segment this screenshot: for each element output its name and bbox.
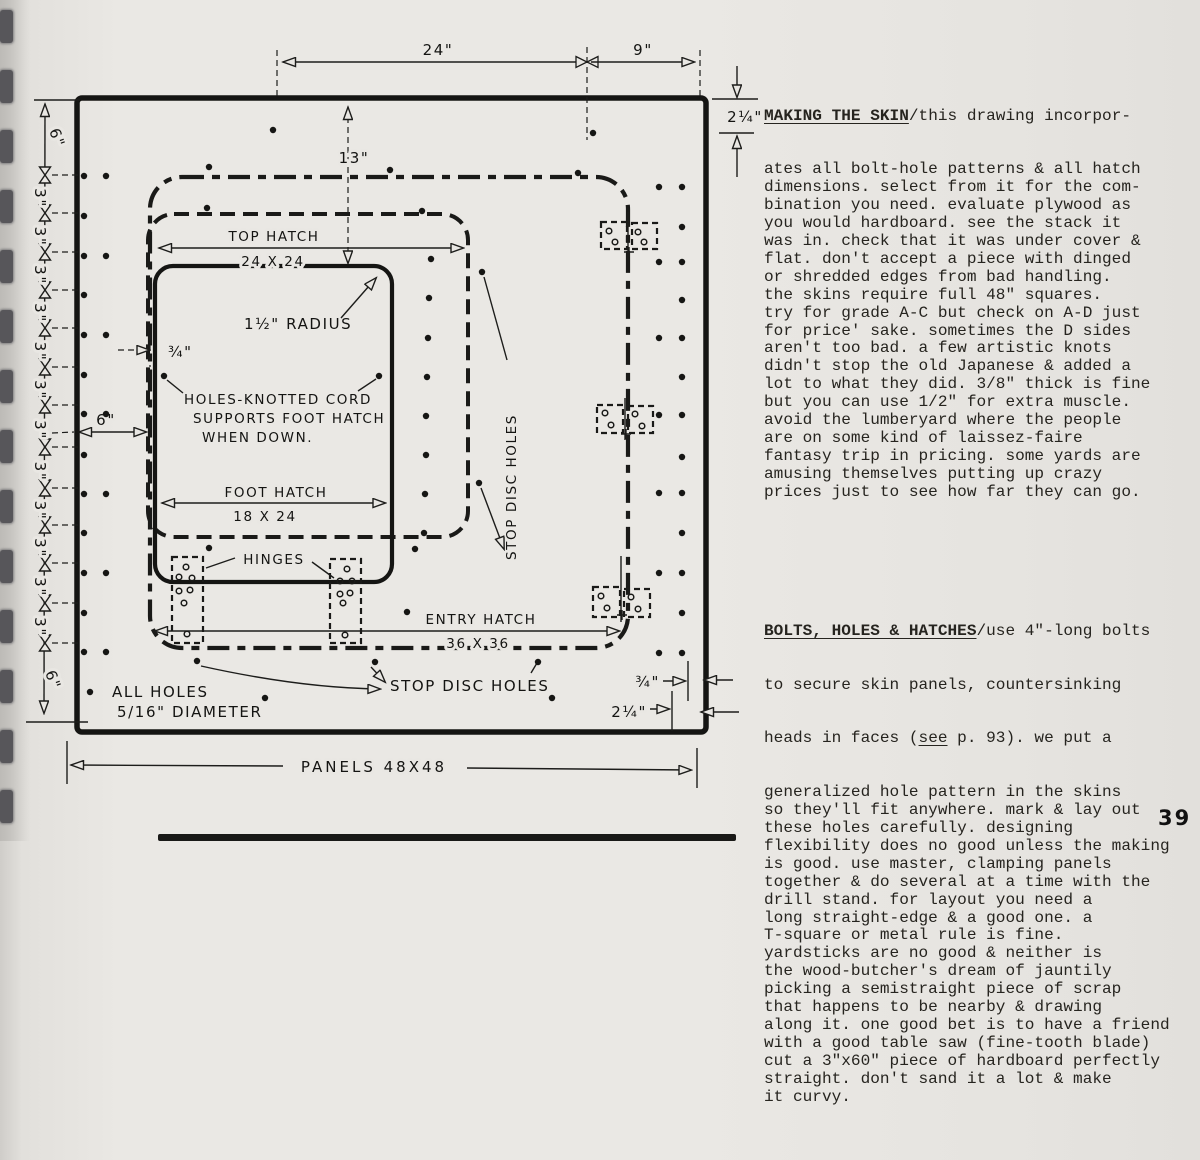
label-top-hatch: TOP HATCH [227,229,319,245]
paragraph-making-the-skin: MAKING THE SKIN/this drawing incorpor- a… [764,72,1192,538]
see-line-post: p. 93). we put a [948,729,1112,747]
bolt-hole-dot [549,695,555,701]
label-knotted-1: HOLES-KNOTTED CORD [184,392,372,408]
small-hole-circle [183,564,189,570]
text-line: the skins require full 48" squares. [764,287,1192,305]
dim-6-top-label: 6" [45,126,69,151]
knotted-leader [167,380,183,393]
bolt-hole-dot [103,649,109,655]
text-line: fantasy trip in pricing. some yards are [764,448,1192,466]
dim-line-panels [467,768,691,770]
text-line: cut a 3"x60" piece of hardboard perfectl… [764,1053,1192,1071]
article-text: MAKING THE SKIN/this drawing incorpor- a… [764,36,1192,1160]
small-hole-circle [337,591,343,597]
text-line: avoid the lumberyard where the people [764,412,1192,430]
label-panels: PANELS 48X48 [301,758,447,776]
text-line: didn't stop the old Japanese & added a [764,358,1192,376]
dim-3-inch-label: 3" [31,303,49,323]
section-title-making-the-skin: MAKING THE SKIN [764,107,909,125]
dim-3-inch-label: 3" [31,538,49,558]
text-line: or shredded edges from bad handling. [764,269,1192,287]
text-line: is good. use master, clamping panels [764,856,1192,874]
dim-34ul-label: ¾" [168,343,193,361]
bolt-hole-dot [103,411,109,417]
small-hole-circle [347,590,353,596]
small-hole-circle [187,587,193,593]
dim-24-label: 24" [423,41,454,59]
small-hole-circle [344,566,350,572]
text-line: amusing themselves putting up crazy [764,466,1192,484]
text-line: BOLTS, HOLES & HATCHES/use 4"-long bolts [764,623,1192,641]
text-line: it curvy. [764,1089,1192,1107]
bolt-hole-dot [81,491,87,497]
small-hole-circle [184,631,190,637]
bolt-hole-dot [376,373,382,379]
bolt-hole-dot [81,372,87,378]
bolt-hole-dot [81,649,87,655]
dim-214tr-label: 2¼" [727,108,760,126]
bolt-hole-dot [419,208,425,214]
bolt-pattern-3 [593,556,650,622]
bolt-hole-dot [87,689,93,695]
bolt-hole-dot [679,610,685,616]
text-line: drill stand. for layout you need a [764,892,1192,910]
paragraph-lines: generalized hole pattern in the skinsso … [764,784,1192,1106]
small-hole-circle [176,588,182,594]
text-line: to secure skin panels, countersinking [764,677,1192,695]
text-line: along it. one good bet is to have a frie… [764,1017,1192,1035]
bolt-hole-dot [679,297,685,303]
label-all-holes-2: 5/16" DIAMETER [117,703,262,721]
small-hole-circle [639,423,645,429]
bolt-hole-dot [103,173,109,179]
small-hole-circle [641,239,647,245]
dim-13-label: 13" [339,149,370,167]
bolt-hole-dot [194,658,200,664]
dim-3-inch-label: 3" [31,342,49,362]
bolt-hole-dot [81,452,87,458]
text-line: these holes carefully. designing [764,820,1192,838]
small-hole-circle [342,632,348,638]
bolt-hole-dot [103,491,109,497]
small-hole-circle [604,605,610,611]
text-line: generalized hole pattern in the skins [764,784,1192,802]
small-hole-circle [598,593,604,599]
text-line: flat. don't accept a piece with dinged [764,251,1192,269]
page-number: 39 [1158,806,1191,830]
bolt-hole-dot [476,480,482,486]
label-entry-hatch: ENTRY HATCH [426,612,537,628]
bolt-hole-dot [422,491,428,497]
small-hole-circle [635,606,641,612]
text-line: that happens to be nearby & drawing [764,999,1192,1017]
bowtie-tick [40,480,51,496]
label-top-hatch-size: 24 X 24 [241,254,304,270]
label-stop-disc-bottom: STOP DISC HOLES [390,677,549,695]
bolt-hole-dot [428,256,434,262]
text-line: T-square or metal rule is fine. [764,927,1192,945]
dim-3-inch-label: 3" [31,501,49,521]
stop-disc-leader [481,488,504,549]
bolt-hole-dot [423,413,429,419]
bolt-hole-dot [81,530,87,536]
paragraph-bolts-holes-hatches: BOLTS, HOLES & HATCHES/use 4"-long bolts… [764,587,1192,1142]
small-hole-circle [635,229,641,235]
bolt-hole-dot [103,570,109,576]
hinges-leader [206,558,235,568]
title-continuation: /use 4"-long bolts [976,622,1150,640]
dim-34br-label: ¾" [635,673,660,691]
text-line: MAKING THE SKIN/this drawing incorpor- [764,108,1192,126]
scan-edge-artifact [158,834,736,841]
bowtie-tick [40,595,51,611]
radius-leader [341,278,376,318]
bowtie-tick [40,359,51,375]
bolt-hole-dot [425,335,431,341]
dim-214br-label: 2¼" [611,703,647,721]
bolt-hole-dot [575,170,581,176]
bolt-hole-dot [679,530,685,536]
text-line: together & do several at a time with the [764,874,1192,892]
text-line: lot to what they did. 3/8" thick is fine [764,376,1192,394]
bolt-hole-dot [656,259,662,265]
bolt-hole-dot [81,610,87,616]
label-entry-hatch-size: 36 X 36 [446,636,509,652]
bowtie-tick [40,439,51,455]
bowtie-tick [40,635,51,651]
bolt-hole-dot [656,650,662,656]
bolt-hole-dot [404,609,410,615]
dim-3-inch-label: 3" [31,462,49,482]
stop-disc-leader [371,667,385,682]
bolt-hole-dot [103,253,109,259]
label-foot-hatch-size: 18 X 24 [233,509,296,525]
bolt-hole-dot [535,659,541,665]
bolt-hole-dot [656,570,662,576]
text-line: with a good table saw (fine-tooth blade) [764,1035,1192,1053]
text-line: heads in faces (see p. 93). we put a [764,730,1192,748]
bolt-hole-dot [679,224,685,230]
text-line: but you can use 1/2" for extra muscle. [764,394,1192,412]
dim-9-label: 9" [633,41,653,59]
bolt-hole-dot [262,695,268,701]
bowtie-tick [40,167,51,183]
bolt-hole-dot [81,173,87,179]
bolt-hole-dot [206,164,212,170]
paragraph-lines: ates all bolt-hole patterns & all hatchd… [764,161,1192,501]
bolt-hole-dot [81,570,87,576]
small-hole-circle [176,574,182,580]
text-line: so they'll fit anywhere. mark & lay out [764,802,1192,820]
bolt-hole-dot [679,184,685,190]
bolt-hole-dot [412,546,418,552]
bolt-hole-dot [81,332,87,338]
bolt-hole-dot [81,411,87,417]
bolt-hole-dot [426,295,432,301]
bowtie-tick [40,244,51,260]
stop-disc-leader [201,666,380,689]
bolt-hole-dot [479,269,485,275]
bolt-hole-dot [81,253,87,259]
ext-line [52,432,74,433]
dim-3-inch-label: 3" [31,265,49,285]
small-hole-circle [181,600,187,606]
text-line: the wood-butcher's dream of jauntily [764,963,1192,981]
dim-3-inch-label: 3" [31,227,49,247]
dim-3-inch-label: 3" [31,617,49,637]
text-line: yardsticks are no good & neither is [764,945,1192,963]
text-line: long straight-edge & a good one. a [764,910,1192,928]
text-line: are on some kind of laissez-faire [764,430,1192,448]
text-line: prices just to see how far they can go. [764,484,1192,502]
label-all-holes-1: ALL HOLES [112,683,209,701]
bolt-hole-dot [679,412,685,418]
bolt-hole-dot [656,335,662,341]
label-foot-hatch: FOOT HATCH [225,485,328,501]
bolt-hole-dot [206,545,212,551]
small-hole-circle [340,600,346,606]
dim-3-inch-label: 3" [31,577,49,597]
label-hinges: HINGES [243,552,304,568]
bolt-hole-dot [679,490,685,496]
skin-panel-diagram: 24" 9" 13" 2¼" 3"3"3"3"3"3"3"3"3"3"3"3" … [0,0,760,800]
small-hole-circle [608,422,614,428]
dim-3-inch-label: 3" [31,380,49,400]
small-hole-circle [628,594,634,600]
small-hole-circle [606,228,612,234]
text-line: try for grade A-C but check on A-D just [764,305,1192,323]
bolt-hole-dot [161,373,167,379]
bolt-hole-dot [424,374,430,380]
text-line: straight. don't sand it a lot & make [764,1071,1192,1089]
bolt-hole-dot [423,452,429,458]
bolt-hole-dot [103,332,109,338]
bolt-hole-dot [421,530,427,536]
see-line-pre: heads in faces ( [764,729,919,747]
paragraph-lines: to secure skin panels, countersinking [764,677,1192,695]
stop-disc-leader [484,277,507,360]
text-line: dimensions. select from it for the com- [764,179,1192,197]
bolt-hole-dot [204,205,210,211]
bolt-hole-dot [81,213,87,219]
bolt-hole-dot [679,454,685,460]
bolt-hole-dot [679,259,685,265]
text-line: bination you need. evaluate plywood as [764,197,1192,215]
small-hole-circle [612,239,618,245]
text-line: you would hardboard. see the stack it [764,215,1192,233]
dim-3-inch-label: 3" [31,420,49,440]
knotted-leader [358,379,376,391]
small-hole-circle [602,410,608,416]
small-hole-circle [632,411,638,417]
dim-line-panels [71,765,283,766]
bolt-hole-dot [270,127,276,133]
dim-3-inch-label: 3" [31,188,49,208]
text-line: aren't too bad. a few artistic knots [764,340,1192,358]
label-knotted-3: WHEN DOWN. [202,430,313,446]
bolt-hole-dot [387,167,393,173]
text-line: for price' sake. sometimes the D sides [764,323,1192,341]
bolt-hole-dot [679,374,685,380]
bolt-hole-dot [81,292,87,298]
label-knotted-2: SUPPORTS FOOT HATCH [193,411,385,427]
bolt-pattern-2 [597,398,653,440]
radius-label: 1½" RADIUS [244,315,352,333]
bolt-hole-dot [372,659,378,665]
bolt-hole-dot [656,412,662,418]
text-line: ates all bolt-hole patterns & all hatch [764,161,1192,179]
bolt-hole-dot [679,335,685,341]
bolt-hole-dot [656,184,662,190]
bolt-hole-dot [679,570,685,576]
see-reference: see [919,729,948,747]
text-line: was in. check that it was under cover & [764,233,1192,251]
title-continuation: /this drawing incorpor- [909,107,1131,125]
bolt-hole-dot [590,130,596,136]
text-line: picking a semistraight piece of scrap [764,981,1192,999]
label-stop-disc-vertical: STOP DISC HOLES [504,414,520,560]
bolt-hole-dot [656,490,662,496]
section-title-bolts-holes-hatches: BOLTS, HOLES & HATCHES [764,622,976,640]
bolt-hole-dot [679,650,685,656]
